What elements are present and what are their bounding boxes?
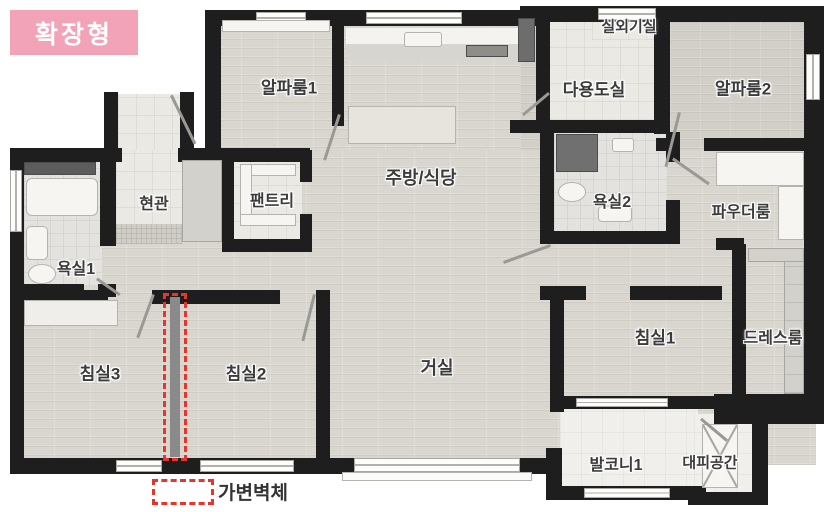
- window-kitchen: [366, 12, 462, 24]
- wall-shelter-right: [752, 418, 768, 496]
- label-utility: 다용도실: [563, 76, 626, 101]
- wall-powder-bottom-stub: [716, 238, 744, 250]
- dressroom-wardrobe-side: [784, 248, 804, 394]
- label-living-room: 거실: [420, 354, 453, 380]
- bathroom1-toilet: [28, 264, 56, 284]
- label-alpharoom1: 알파룸1: [261, 74, 317, 99]
- wall-bedroom1-dressroom: [732, 244, 746, 396]
- bathroom1-sink: [26, 226, 48, 260]
- window-bathroom1: [10, 170, 22, 232]
- label-dress-room: 드레스룸: [744, 324, 803, 348]
- wall-kitchen-alpharoom1: [332, 22, 344, 126]
- window-bedroom2: [200, 460, 294, 472]
- refrigerator: [518, 18, 535, 62]
- label-bedroom2: 침실2: [226, 360, 267, 385]
- window-bedroom3: [116, 460, 162, 472]
- wall-shelter-bottom: [688, 492, 768, 505]
- wall-utility-bottom: [510, 120, 662, 133]
- label-outdoor-unit: 실외기실: [601, 16, 656, 37]
- wall-bedroom2-top: [184, 290, 280, 304]
- bathroom2-sink-top: [612, 138, 634, 152]
- floor-plan: 알파룸1 주방/식당 실외기실 다용도실 알파룸2 현관 팬트리 욕실1 욕실2…: [0, 0, 834, 512]
- window-bedroom1-balcony: [576, 398, 668, 407]
- wall-pantry-bottom: [222, 239, 312, 252]
- bathroom2-toilet: [558, 182, 586, 202]
- wall-entrance-bath1: [100, 150, 116, 246]
- wall-bedroom2-living: [316, 290, 330, 460]
- floor-entrance-mosaic: [116, 224, 182, 244]
- legend-movable-wall-label: 가변벽체: [218, 478, 288, 505]
- wall-utility-alpharoom2: [654, 20, 670, 134]
- entrance-closet: [182, 160, 222, 242]
- label-kitchen: 주방/식당: [385, 164, 456, 190]
- window-living-sill: [342, 472, 532, 481]
- label-powder-room: 파우더룸: [712, 198, 771, 222]
- bathtub: [26, 178, 98, 216]
- wall-bath2-left: [540, 132, 554, 244]
- kitchen-cooktop: [466, 45, 508, 57]
- floor-entrance: [116, 150, 182, 226]
- legend-movable-wall-swatch: [152, 479, 214, 505]
- kitchen-sink: [404, 32, 442, 47]
- label-bathroom1: 욕실1: [57, 255, 95, 279]
- label-bedroom3: 침실3: [80, 360, 121, 385]
- wall-bedroom1-top-b: [630, 286, 722, 300]
- label-shelter: 대피공간: [682, 452, 737, 473]
- wall-pantry-right-a: [300, 150, 312, 182]
- alpharoom1-closet: [222, 20, 330, 32]
- window-living: [354, 458, 520, 472]
- wall-alpharoom1-left: [205, 10, 221, 162]
- movable-wall-outline: [163, 293, 187, 461]
- bathroom2-closet: [556, 134, 598, 172]
- type-badge: 확장형: [10, 10, 138, 55]
- wall-top-right: [520, 6, 820, 22]
- wall-kitchen-utility: [536, 20, 550, 132]
- label-entrance: 현관: [139, 190, 168, 214]
- floor-balcony1: [560, 404, 698, 496]
- label-alpharoom2: 알파룸2: [715, 75, 771, 100]
- window-alpharoom2: [806, 54, 820, 100]
- kitchen-island: [348, 106, 456, 144]
- bathroom1-shelf: [24, 162, 96, 175]
- window-balcony: [584, 488, 670, 498]
- label-bathroom2: 욕실2: [593, 188, 631, 212]
- dressroom-wardrobe-top: [748, 248, 804, 262]
- wall-bedroom1-top-a: [540, 286, 586, 300]
- bedroom3-closet: [24, 300, 118, 326]
- label-balcony1: 발코니1: [589, 451, 642, 475]
- wall-pantry-left: [222, 150, 234, 252]
- wall-bath2-right-b: [666, 200, 680, 244]
- pantry-shelf-bottom: [240, 214, 296, 226]
- wall-living-bedroom1: [550, 288, 564, 412]
- wall-alpharoom2-bottom-b: [704, 138, 820, 151]
- label-pantry: 팬트리: [250, 187, 294, 211]
- label-bedroom1: 침실1: [635, 324, 676, 349]
- powder-counter-top: [716, 152, 804, 186]
- wall-bath2-bottom: [540, 231, 680, 244]
- powder-counter-side: [778, 186, 804, 240]
- floor-entry-vestibule: [118, 94, 180, 152]
- wall-dressroom-bottom: [714, 394, 824, 424]
